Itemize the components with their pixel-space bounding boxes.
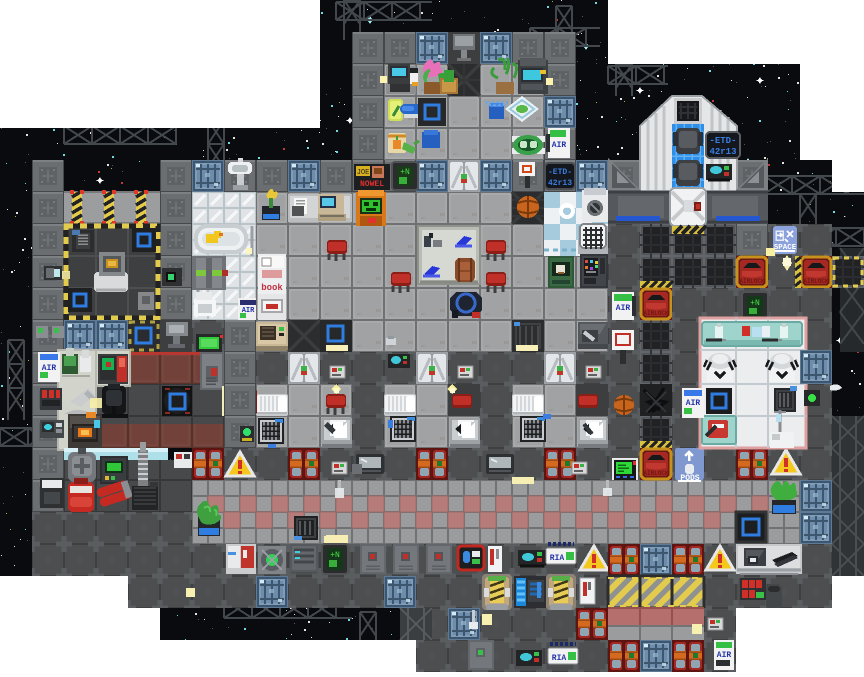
svg-text:book: book: [261, 283, 283, 293]
svg-text:RIA: RIA: [552, 654, 567, 663]
svg-text:AIRLOCK: AIRLOCK: [803, 278, 829, 285]
svg-text:AIR: AIR: [552, 141, 567, 150]
svg-text:AIR: AIR: [42, 364, 57, 373]
svg-text:AIRLOCK: AIRLOCK: [643, 310, 669, 317]
svg-text:+N: +N: [330, 551, 340, 560]
svg-text:42r13: 42r13: [709, 147, 736, 157]
svg-text:-ETD-: -ETD-: [709, 136, 736, 146]
svg-text:+N: +N: [400, 168, 410, 177]
svg-text:+N: +N: [750, 299, 760, 308]
svg-text:NOWEL: NOWEL: [360, 180, 384, 189]
svg-text:AIR: AIR: [717, 651, 732, 660]
svg-text:RIA: RIA: [550, 554, 565, 563]
svg-text:AIRLOCK: AIRLOCK: [643, 470, 669, 477]
svg-text:42r13: 42r13: [548, 179, 572, 188]
svg-text:AIR: AIR: [616, 304, 631, 313]
svg-text:JOE: JOE: [357, 169, 370, 177]
svg-text:AIRLOCK: AIRLOCK: [739, 278, 765, 285]
svg-text:AIR: AIR: [686, 399, 701, 408]
svg-text:-ETD-: -ETD-: [548, 168, 572, 177]
